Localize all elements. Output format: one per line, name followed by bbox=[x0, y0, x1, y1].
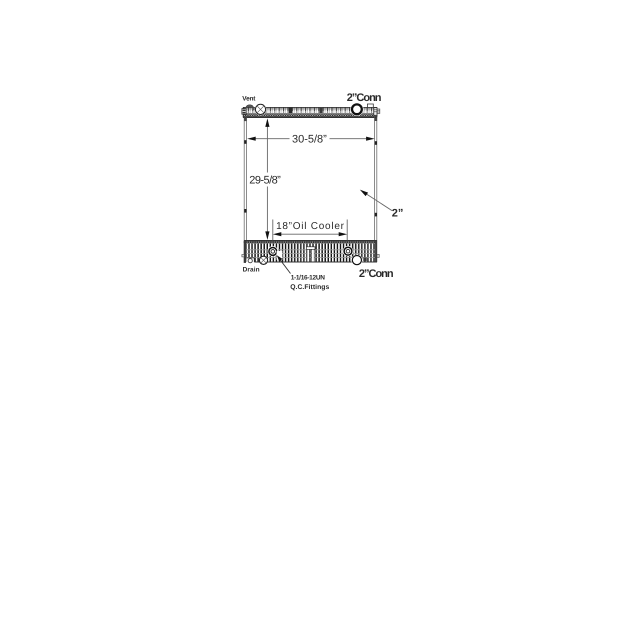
svg-text:2”: 2” bbox=[392, 208, 404, 220]
svg-text:Q.C.Fittings: Q.C.Fittings bbox=[290, 284, 329, 291]
svg-text:2”Conn: 2”Conn bbox=[359, 268, 394, 280]
svg-text:30-5/8”: 30-5/8” bbox=[292, 134, 327, 146]
svg-text:29-5/8”: 29-5/8” bbox=[249, 175, 281, 187]
svg-text:2”Conn: 2”Conn bbox=[347, 92, 382, 104]
svg-text:18”Oil Cooler: 18”Oil Cooler bbox=[276, 221, 345, 232]
svg-text:Vent: Vent bbox=[242, 96, 256, 103]
svg-text:Drain: Drain bbox=[243, 266, 260, 273]
svg-text:1-1/16-12UN: 1-1/16-12UN bbox=[291, 274, 326, 281]
